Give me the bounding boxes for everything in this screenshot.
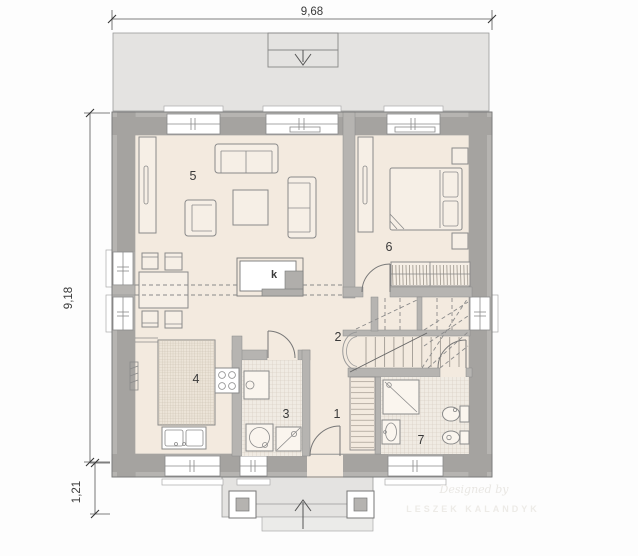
window-top-living	[167, 114, 220, 134]
window-top-terrace-door	[266, 114, 338, 134]
armchair	[185, 200, 216, 236]
utility-sink	[276, 427, 301, 451]
floor-plan-canvas: k 1 2 3 4 5 6 7	[0, 0, 638, 556]
room-label-stairs: 2	[335, 330, 342, 344]
room-label-utility: 3	[283, 407, 290, 421]
room-label-kitchen: 4	[193, 372, 200, 386]
fireplace: k	[237, 258, 303, 296]
coffee-table	[233, 190, 268, 225]
dimension-top: 9,68	[108, 6, 496, 30]
watermark: Designed by LESZEK KALANDYK	[406, 483, 540, 514]
bed	[390, 168, 462, 230]
utility-room	[242, 360, 302, 456]
window-left-dining-2	[113, 297, 133, 330]
entry-opening	[307, 455, 343, 478]
hall-closet	[350, 377, 375, 450]
kitchen-counter-hatch	[158, 340, 215, 425]
watermark-line1: Designed by	[439, 483, 510, 496]
nightstand	[452, 148, 468, 164]
nightstand	[452, 233, 468, 249]
porch-column-left	[229, 491, 256, 518]
room-label-hall: 1	[334, 407, 341, 421]
floor-plan-drawing: k 1 2 3 4 5 6 7	[0, 0, 638, 556]
kitchen-sink	[162, 427, 206, 449]
dimension-left: 9,18	[63, 109, 110, 466]
bathroom	[381, 377, 469, 454]
shelf-unit	[358, 137, 373, 232]
porch-column-right	[347, 491, 374, 518]
dimension-porch-label: 1,21	[71, 481, 83, 503]
sofa	[215, 144, 278, 173]
washing-machine	[246, 424, 273, 451]
shower	[383, 380, 419, 414]
shelf-unit	[139, 137, 156, 233]
room-label-bathroom: 7	[418, 433, 425, 447]
window-right-stairs	[470, 297, 490, 330]
dimension-porch: 1,21	[71, 459, 110, 518]
bidet	[443, 431, 470, 444]
loveseat	[288, 177, 316, 238]
window-bottom-bathroom	[388, 456, 443, 476]
boiler	[244, 371, 269, 399]
stove	[215, 368, 239, 393]
room-label-bedroom: 6	[386, 240, 393, 254]
wardrobe	[391, 262, 470, 286]
window-bottom-utility	[240, 456, 267, 476]
terrace	[113, 33, 489, 111]
watermark-line2: LESZEK KALANDYK	[406, 504, 540, 514]
window-left-dining-1	[113, 252, 133, 285]
toilet	[443, 406, 470, 422]
dining-table	[139, 272, 188, 308]
fireplace-label: k	[271, 269, 278, 281]
room-label-living: 5	[190, 169, 197, 183]
washbasin	[382, 420, 400, 444]
window-bottom-kitchen	[165, 456, 220, 476]
dimension-height-label: 9,18	[63, 287, 75, 309]
dimension-width-label: 9,68	[301, 6, 323, 18]
